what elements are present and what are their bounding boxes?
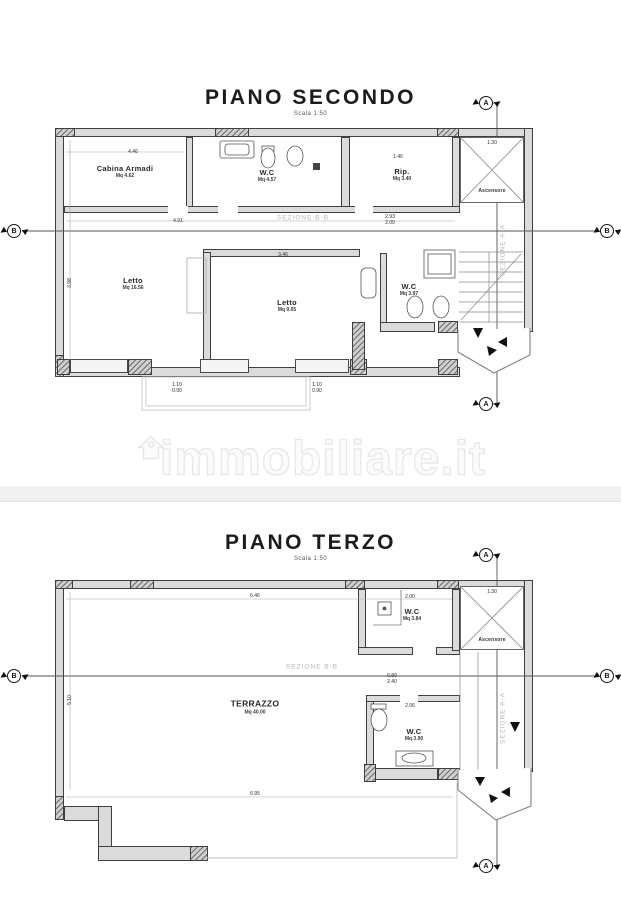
shower (424, 250, 455, 278)
hatch-block (364, 764, 376, 782)
hatch-block (215, 128, 249, 137)
dim-label: 1.46 (393, 154, 403, 160)
hatch-block (438, 768, 460, 780)
wall-segment (452, 589, 460, 651)
window (70, 359, 128, 373)
dim-label: 6.95 (250, 791, 260, 797)
door-opening (168, 206, 188, 213)
section-marker-a-top-plan2: A (479, 548, 493, 562)
section-marker-b-left-plan2: B (7, 669, 21, 683)
hatch-block (190, 846, 208, 861)
wall-segment (452, 137, 460, 207)
elevator-label-plan1: Ascensore (478, 188, 505, 194)
dim-label: 1.30 (487, 589, 497, 595)
dim-label: 1.30 (487, 140, 497, 146)
wall-segment (341, 137, 350, 207)
dim-label: 5.10 (67, 695, 73, 705)
dim-label: 2.40 (387, 679, 397, 685)
bidet (433, 296, 449, 318)
section-label-aa-plan2: SEZIONE A-A (500, 692, 507, 744)
plan2-scale: Scala 1:50 (0, 556, 621, 562)
dim-label: 6.46 (250, 593, 260, 599)
wall-segment (55, 128, 533, 137)
direction-arrow (510, 722, 520, 732)
hatch-block (55, 128, 75, 137)
direction-arrow (501, 787, 510, 797)
hatch-block (57, 359, 70, 375)
dim-label: 2.06 (405, 703, 415, 709)
toilet-tank (262, 146, 274, 151)
hatch-block (55, 580, 73, 589)
section-line-aa-plan1 (493, 103, 497, 404)
wall-segment (524, 580, 533, 772)
section-label-bb-plan2: SEZIONE B-B (286, 664, 338, 671)
direction-arrow (473, 328, 483, 338)
hatch-block (437, 580, 459, 589)
door-opening (355, 206, 373, 213)
section-label-bb-plan1: SEZIONE B-B (277, 215, 329, 222)
hatch-block (438, 321, 458, 333)
watermark: immobiliare.it (136, 432, 486, 487)
wall-segment (366, 695, 374, 773)
wall-sink (361, 268, 376, 298)
bidet (287, 146, 303, 166)
hatch-block (437, 128, 459, 137)
room-label-rip: Rip. Mq 3.40 (393, 167, 411, 183)
stair-corridor-plan2 (460, 652, 520, 770)
dim-label: 0.90 (312, 388, 322, 394)
wall-segment (203, 252, 211, 368)
room-label-wc-bottom: W.C Mq 3.90 (405, 727, 423, 743)
room-label-wc-top: W.C Mq 3.84 (403, 607, 421, 623)
hatch-block (130, 580, 154, 589)
wall-segment (374, 768, 438, 780)
wall-segment (358, 589, 366, 649)
door-opening (218, 206, 238, 213)
stairs-plan1 (459, 252, 523, 322)
window (295, 359, 349, 373)
plan1-title: PIANO SECONDO (0, 86, 621, 110)
dim-label: 0.90 (172, 388, 182, 394)
direction-arrow (487, 346, 497, 356)
room-label-wc-1: W.C Mq 4.57 (258, 168, 276, 184)
shaft-box (378, 602, 391, 615)
wall-segment (55, 128, 64, 377)
hatch-block (55, 796, 64, 820)
section-marker-b-right-plan1: B (600, 224, 614, 238)
door-opening (400, 695, 418, 702)
direction-arrow (498, 337, 507, 347)
section-marker-b-right-plan2: B (600, 669, 614, 683)
wall-segment (55, 580, 533, 589)
hatch-block (352, 322, 365, 370)
wall-segment (186, 137, 193, 207)
dim-label: 4.46 (128, 149, 138, 155)
hatch-block (438, 359, 458, 375)
room-label-letto-2: Letto Mq 9.05 (277, 298, 297, 314)
section-marker-b-left-plan1: B (7, 224, 21, 238)
elevator-label-plan2: Ascensore (478, 637, 505, 643)
balcony-outline-plan1 (142, 377, 310, 410)
toilet (261, 148, 275, 168)
wall-segment (64, 206, 460, 213)
bay-plan1 (458, 328, 530, 373)
hatch-block (345, 580, 365, 589)
image-seam (0, 486, 621, 502)
direction-arrow (475, 777, 485, 786)
floorplan-page: PIANO SECONDO Scala 1:50 PIANO TERZO Sca… (0, 0, 621, 900)
direction-arrow (489, 794, 498, 803)
room-label-cabina-armadi: Cabina Armadi Mq 4.62 (97, 164, 154, 180)
duct (313, 163, 320, 170)
dim-label: 2.00 (385, 220, 395, 226)
plan1-scale: Scala 1:50 (0, 111, 621, 117)
wall-segment (358, 647, 413, 655)
watermark-text: immobiliare.it (160, 432, 486, 487)
terrace-outline-plan2 (207, 783, 457, 858)
section-label-aa-plan1: SEZIONE A-A (500, 224, 507, 276)
section-marker-a-bottom-plan1: A (479, 397, 493, 411)
section-marker-a-top-plan1: A (479, 96, 493, 110)
dim-label: 3.98 (67, 278, 73, 288)
sink (396, 751, 433, 766)
plan2-title: PIANO TERZO (0, 531, 621, 555)
wall-segment (55, 580, 64, 802)
dim-label: 2.00 (405, 594, 415, 600)
dim-label: 4.91 (173, 218, 183, 224)
section-line-aa-plan2 (493, 555, 497, 866)
room-label-wc-2: W.C Mq 3.97 (400, 282, 418, 298)
wall-segment (380, 322, 435, 332)
window (200, 359, 249, 373)
section-marker-a-bottom-plan2: A (479, 859, 493, 873)
room-label-letto-1: Letto Mq 16.56 (122, 276, 143, 292)
wall-segment (380, 253, 387, 323)
wall-segment (524, 128, 533, 332)
toilet (407, 296, 423, 318)
dim-label: 3.46 (278, 252, 288, 258)
room-label-terrazzo: TERRAZZO Mq 40.00 (231, 699, 280, 716)
hatch-block (128, 359, 152, 375)
bay-plan2 (458, 768, 531, 820)
sink (220, 141, 254, 158)
